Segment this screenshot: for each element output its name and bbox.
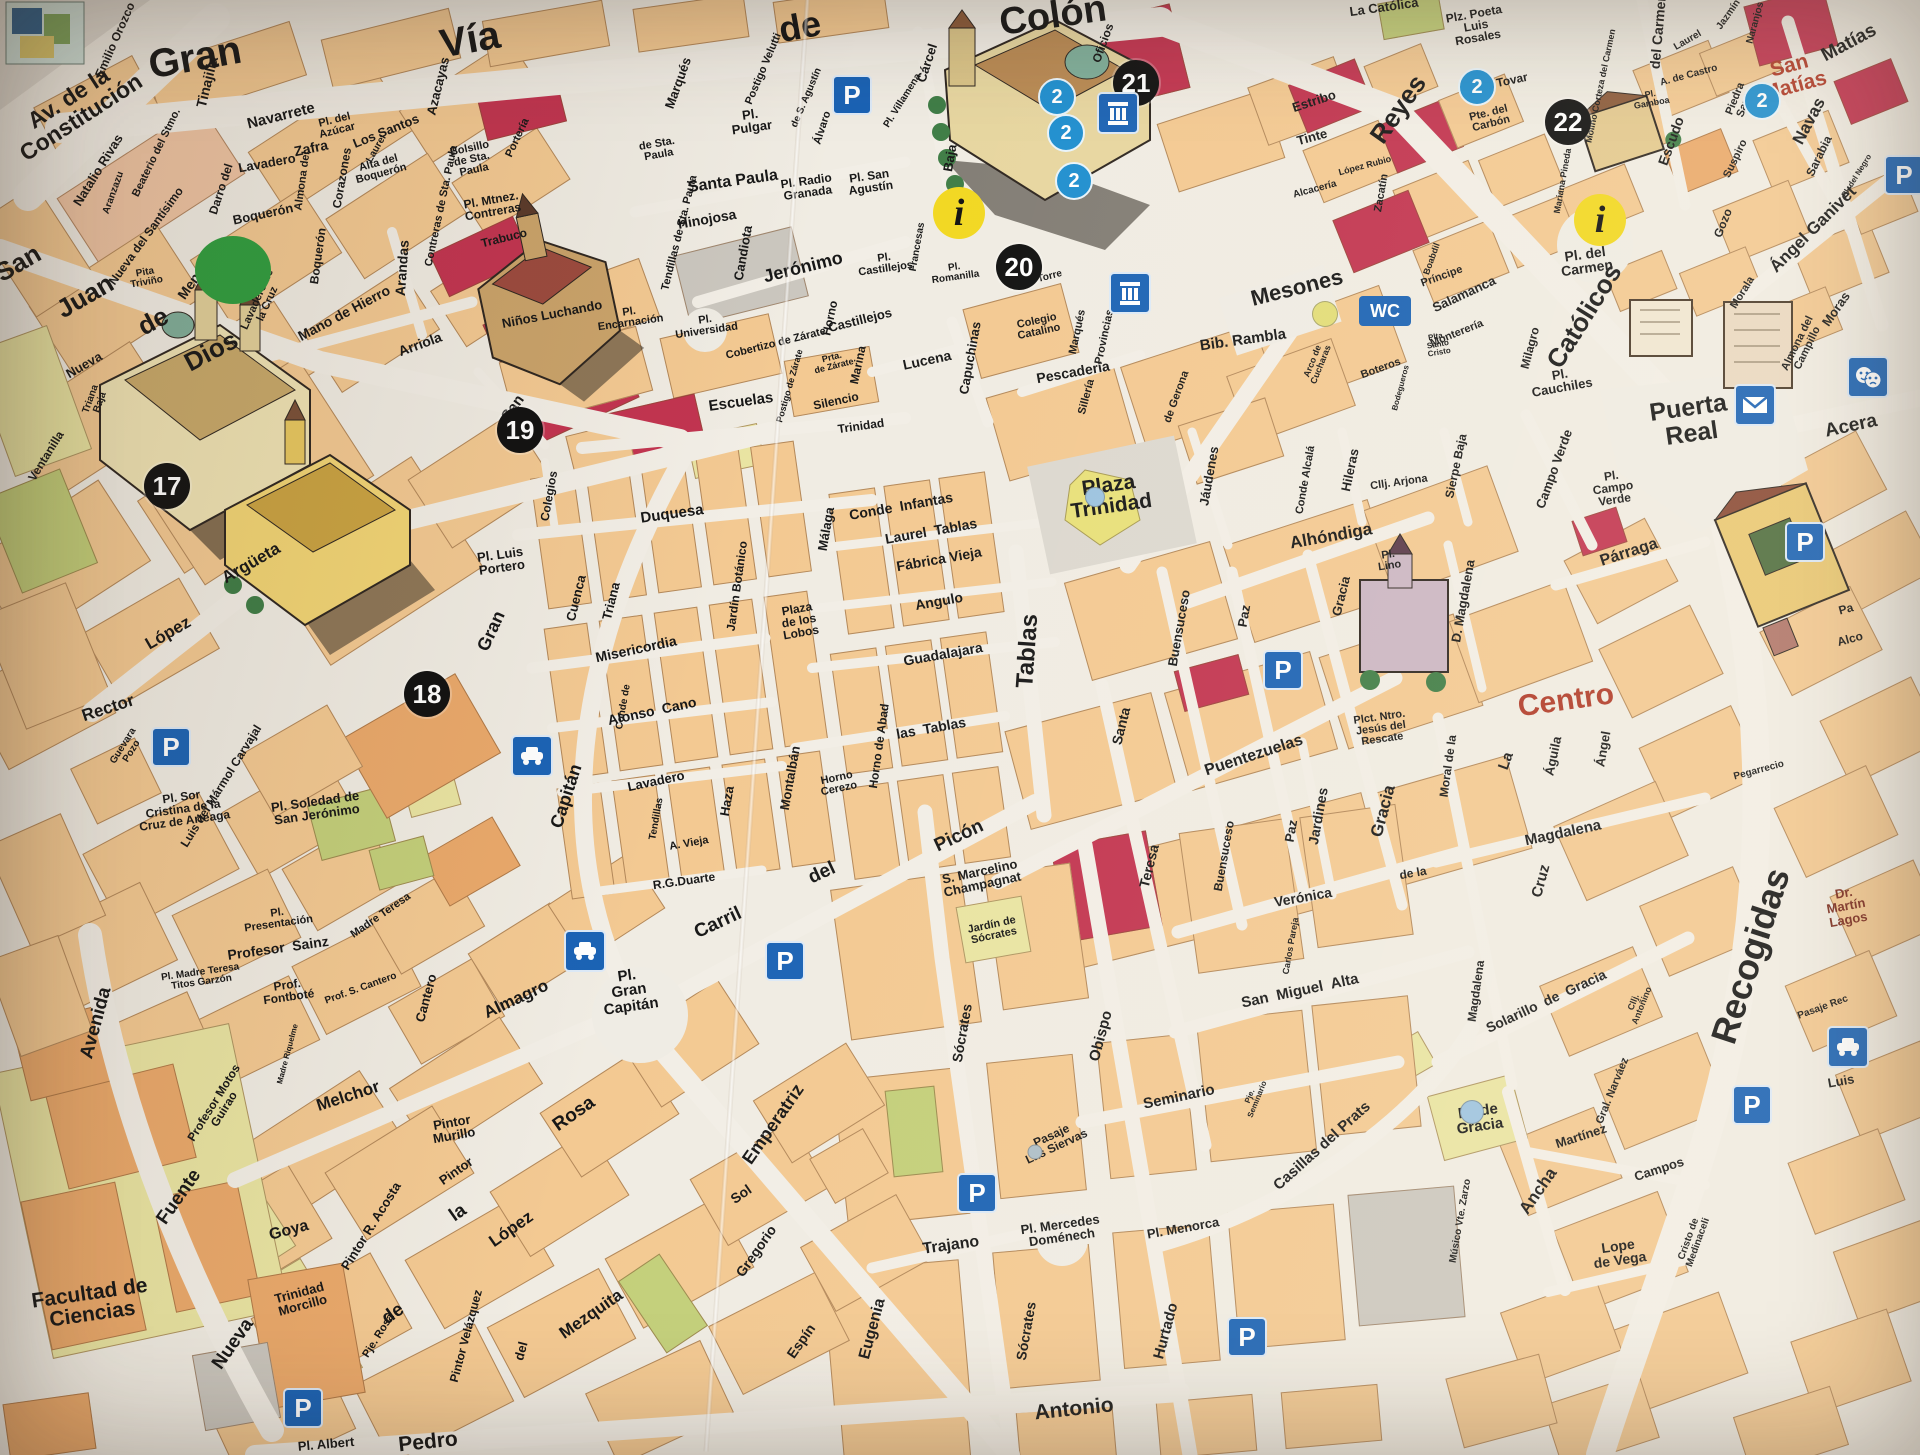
marker-20: 20 bbox=[996, 244, 1042, 290]
mail-icon bbox=[1734, 384, 1776, 426]
parking-icon: P bbox=[1263, 650, 1303, 690]
monument-column-icon bbox=[1109, 272, 1151, 314]
plaza-pond bbox=[1312, 301, 1338, 327]
parking-icon: P bbox=[151, 727, 191, 767]
info-icon: i bbox=[1574, 194, 1626, 246]
taxi-icon bbox=[564, 930, 606, 972]
city-map: GranVíadeColónAv. de la ConstituciónEmil… bbox=[0, 0, 1920, 1455]
plaza-pond bbox=[1085, 487, 1105, 507]
parking-icon: P bbox=[765, 941, 805, 981]
info-icon: i bbox=[933, 187, 985, 239]
parking-icon: P bbox=[1732, 1085, 1772, 1125]
taxi-icon bbox=[511, 735, 553, 777]
parking-icon: P bbox=[1785, 522, 1825, 562]
route-2-marker: 2 bbox=[1038, 78, 1076, 116]
parking-icon: P bbox=[832, 75, 872, 115]
wc-icon: WC bbox=[1359, 296, 1411, 326]
marker-19: 19 bbox=[497, 407, 543, 453]
green-highlight-blob bbox=[195, 236, 271, 304]
route-2-marker: 2 bbox=[1743, 82, 1781, 120]
marker-18: 18 bbox=[404, 671, 450, 717]
theater-masks-icon bbox=[1847, 356, 1889, 398]
parking-icon: P bbox=[957, 1173, 997, 1213]
marker-22: 22 bbox=[1545, 99, 1591, 145]
map-markers: 171819202122ii22222PPPPPPPPPPWC bbox=[0, 0, 1920, 1455]
plaza-pond bbox=[1460, 1100, 1484, 1124]
parking-icon: P bbox=[283, 1388, 323, 1428]
route-2-marker: 2 bbox=[1458, 68, 1496, 106]
route-2-marker: 2 bbox=[1055, 162, 1093, 200]
parking-icon: P bbox=[1884, 155, 1920, 195]
parking-icon: P bbox=[1227, 1317, 1267, 1357]
monument-column-icon bbox=[1097, 92, 1139, 134]
taxi-icon bbox=[1827, 1026, 1869, 1068]
route-2-marker: 2 bbox=[1047, 114, 1085, 152]
marker-17: 17 bbox=[144, 463, 190, 509]
plaza-pond bbox=[1028, 1145, 1043, 1160]
